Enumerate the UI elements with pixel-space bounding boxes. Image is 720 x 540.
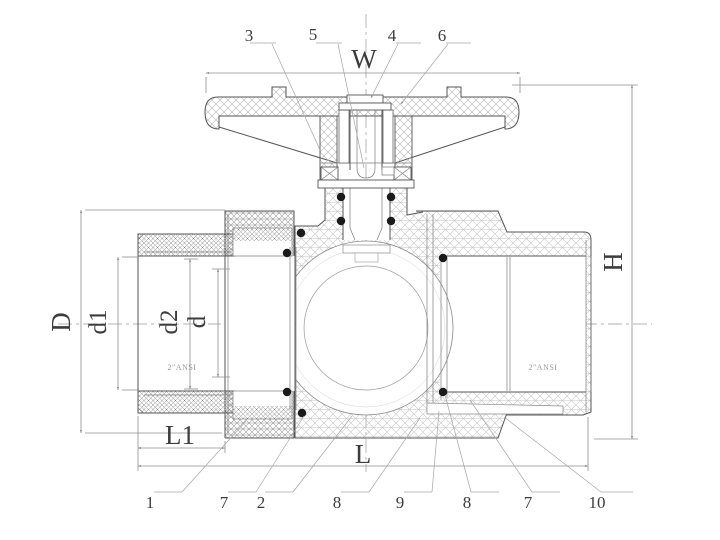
right-port-size-label: 2"ANSI [529, 363, 558, 372]
union-oring [298, 409, 306, 417]
dimension-d1: d1 [85, 257, 138, 390]
callout-6: 6 [438, 26, 447, 45]
dim-d1-label: d1 [85, 310, 112, 335]
callout-7-left: 7 [220, 493, 229, 512]
dim-L1-label: L1 [165, 420, 195, 450]
left-port-size-label: 2"ANSI [168, 363, 197, 372]
seat-oring [439, 388, 447, 396]
valve-section-drawing: 2"ANSI 2"ANSI [0, 0, 720, 540]
callout-5: 5 [309, 25, 318, 44]
union-oring [283, 388, 291, 396]
dimension-L1: L1 [138, 416, 225, 471]
dimension-W: W [206, 44, 520, 93]
technical-drawing-canvas: 2"ANSI 2"ANSI [0, 0, 720, 540]
union-oring [297, 229, 305, 237]
stem-oring [337, 217, 345, 225]
callout-3: 3 [245, 26, 254, 45]
dim-W-label: W [351, 44, 377, 74]
dim-d2-label: d2 [156, 310, 183, 335]
handle-wing-left [219, 127, 337, 163]
dim-d-label: d [184, 315, 211, 328]
callout-8-left: 8 [333, 493, 342, 512]
callout-10: 10 [589, 493, 606, 512]
stem-oring [387, 217, 395, 225]
callout-8-right: 8 [463, 493, 472, 512]
union-oring [283, 249, 291, 257]
callout-4: 4 [388, 26, 397, 45]
dim-L-label: L [355, 439, 372, 469]
bonnet-neck [316, 188, 427, 240]
callout-1: 1 [146, 493, 155, 512]
callout-9: 9 [396, 493, 405, 512]
stem-cap [347, 95, 383, 103]
seat-oring [439, 254, 447, 262]
dim-H-label: H [598, 252, 628, 272]
stem-oring [387, 193, 395, 201]
stem-oring [337, 193, 345, 201]
dim-D-label: D [46, 312, 76, 332]
callout-2: 2 [257, 493, 266, 512]
callout-7-right: 7 [524, 493, 533, 512]
